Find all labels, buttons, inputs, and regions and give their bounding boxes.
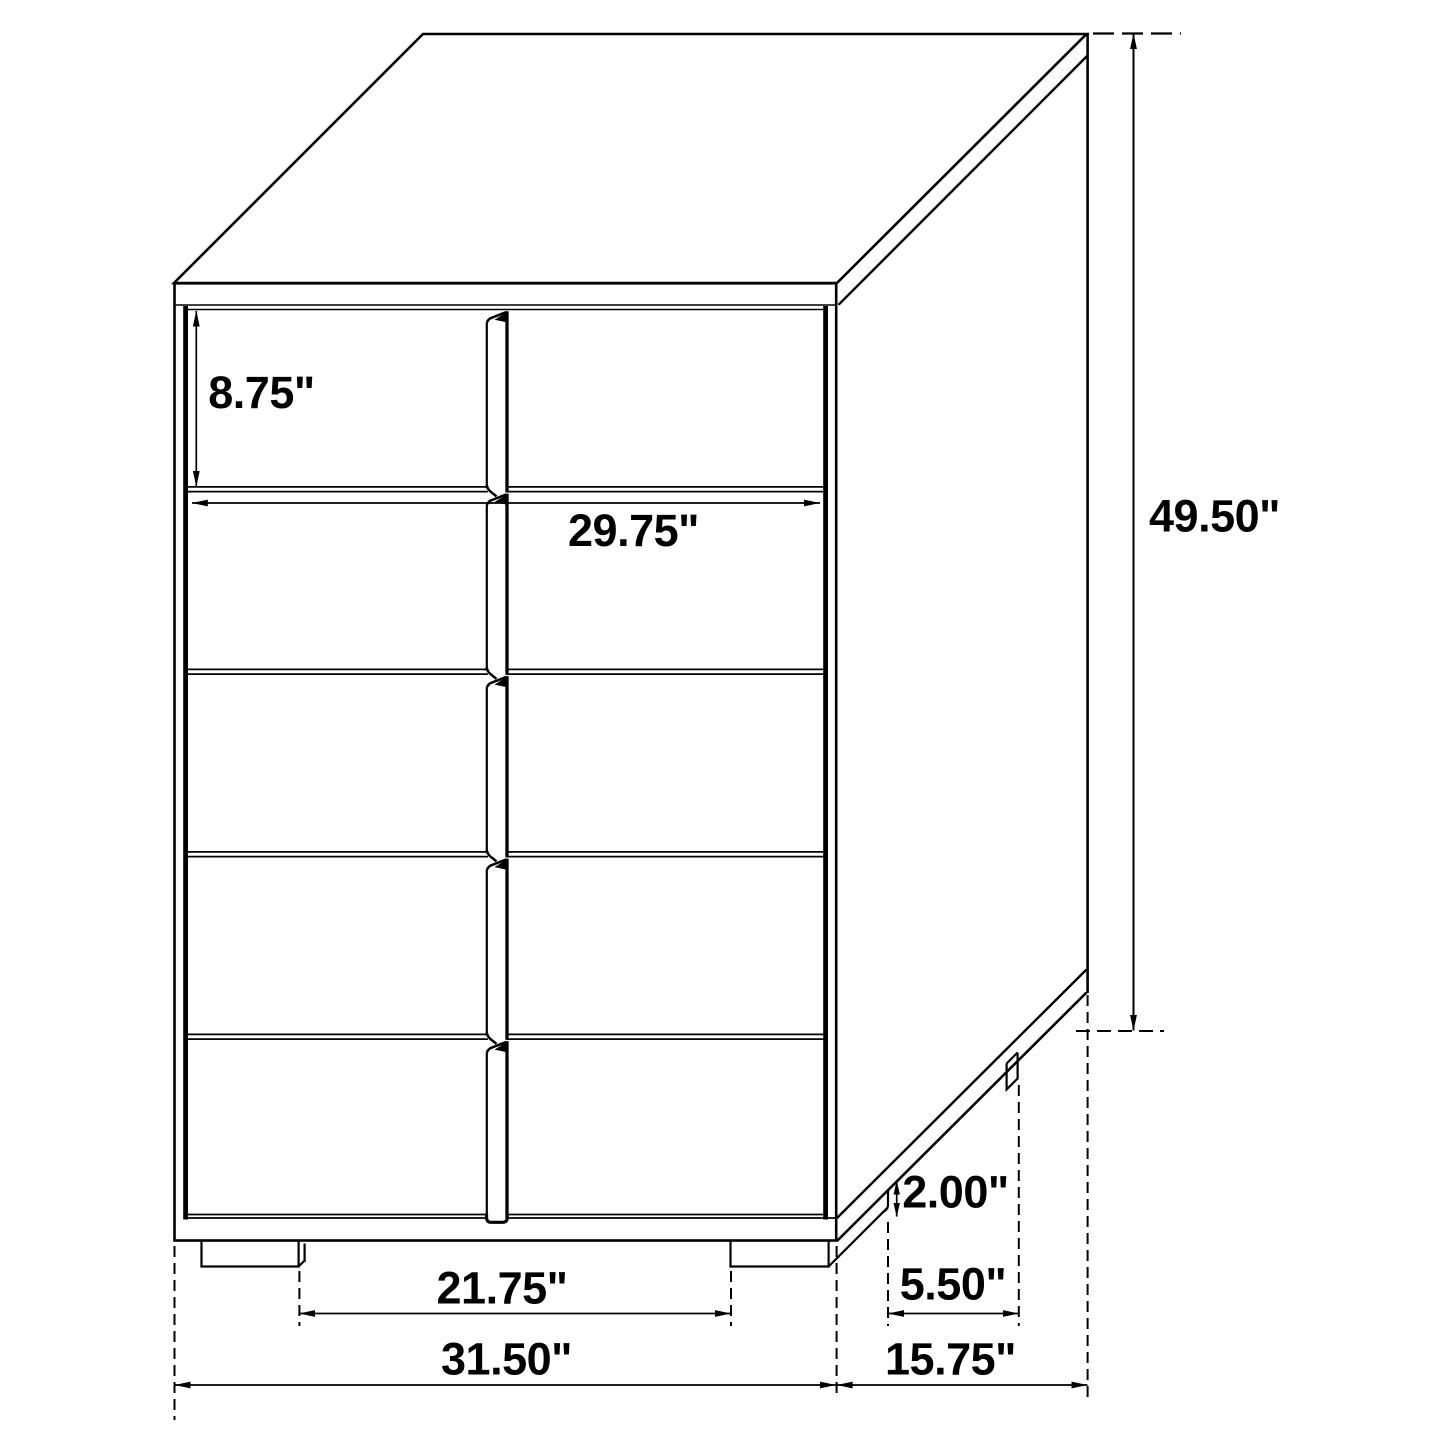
svg-text:5.50": 5.50": [900, 1259, 1006, 1310]
svg-text:31.50": 31.50": [441, 1334, 572, 1385]
svg-text:29.75": 29.75": [568, 505, 699, 556]
svg-text:21.75": 21.75": [437, 1263, 568, 1314]
svg-text:15.75": 15.75": [885, 1334, 1016, 1385]
svg-text:2.00": 2.00": [902, 1167, 1008, 1218]
svg-text:8.75": 8.75": [208, 367, 314, 418]
svg-text:49.50": 49.50": [1149, 491, 1280, 542]
